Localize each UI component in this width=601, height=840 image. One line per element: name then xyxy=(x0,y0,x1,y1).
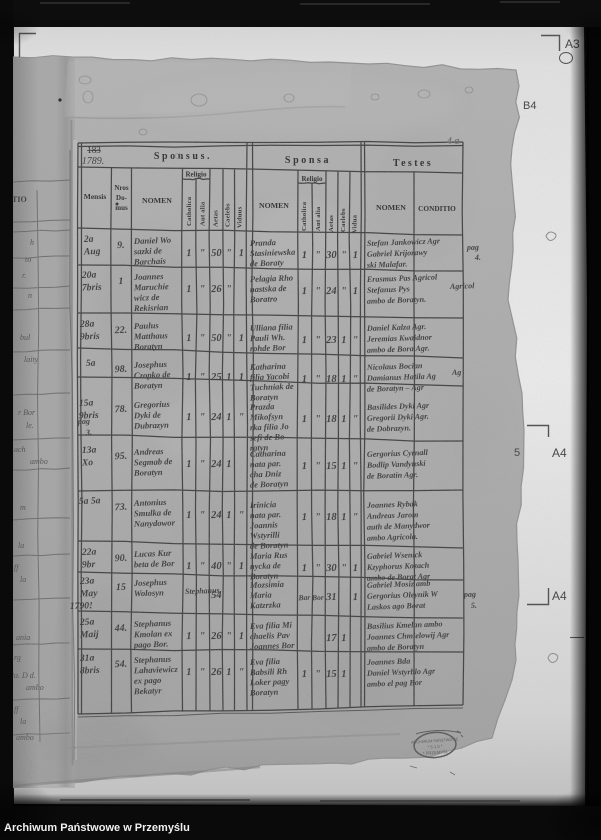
svg-text:Archiwum Państwowe w Przemyślu: Archiwum Państwowe w Przemyślu xyxy=(4,822,190,834)
